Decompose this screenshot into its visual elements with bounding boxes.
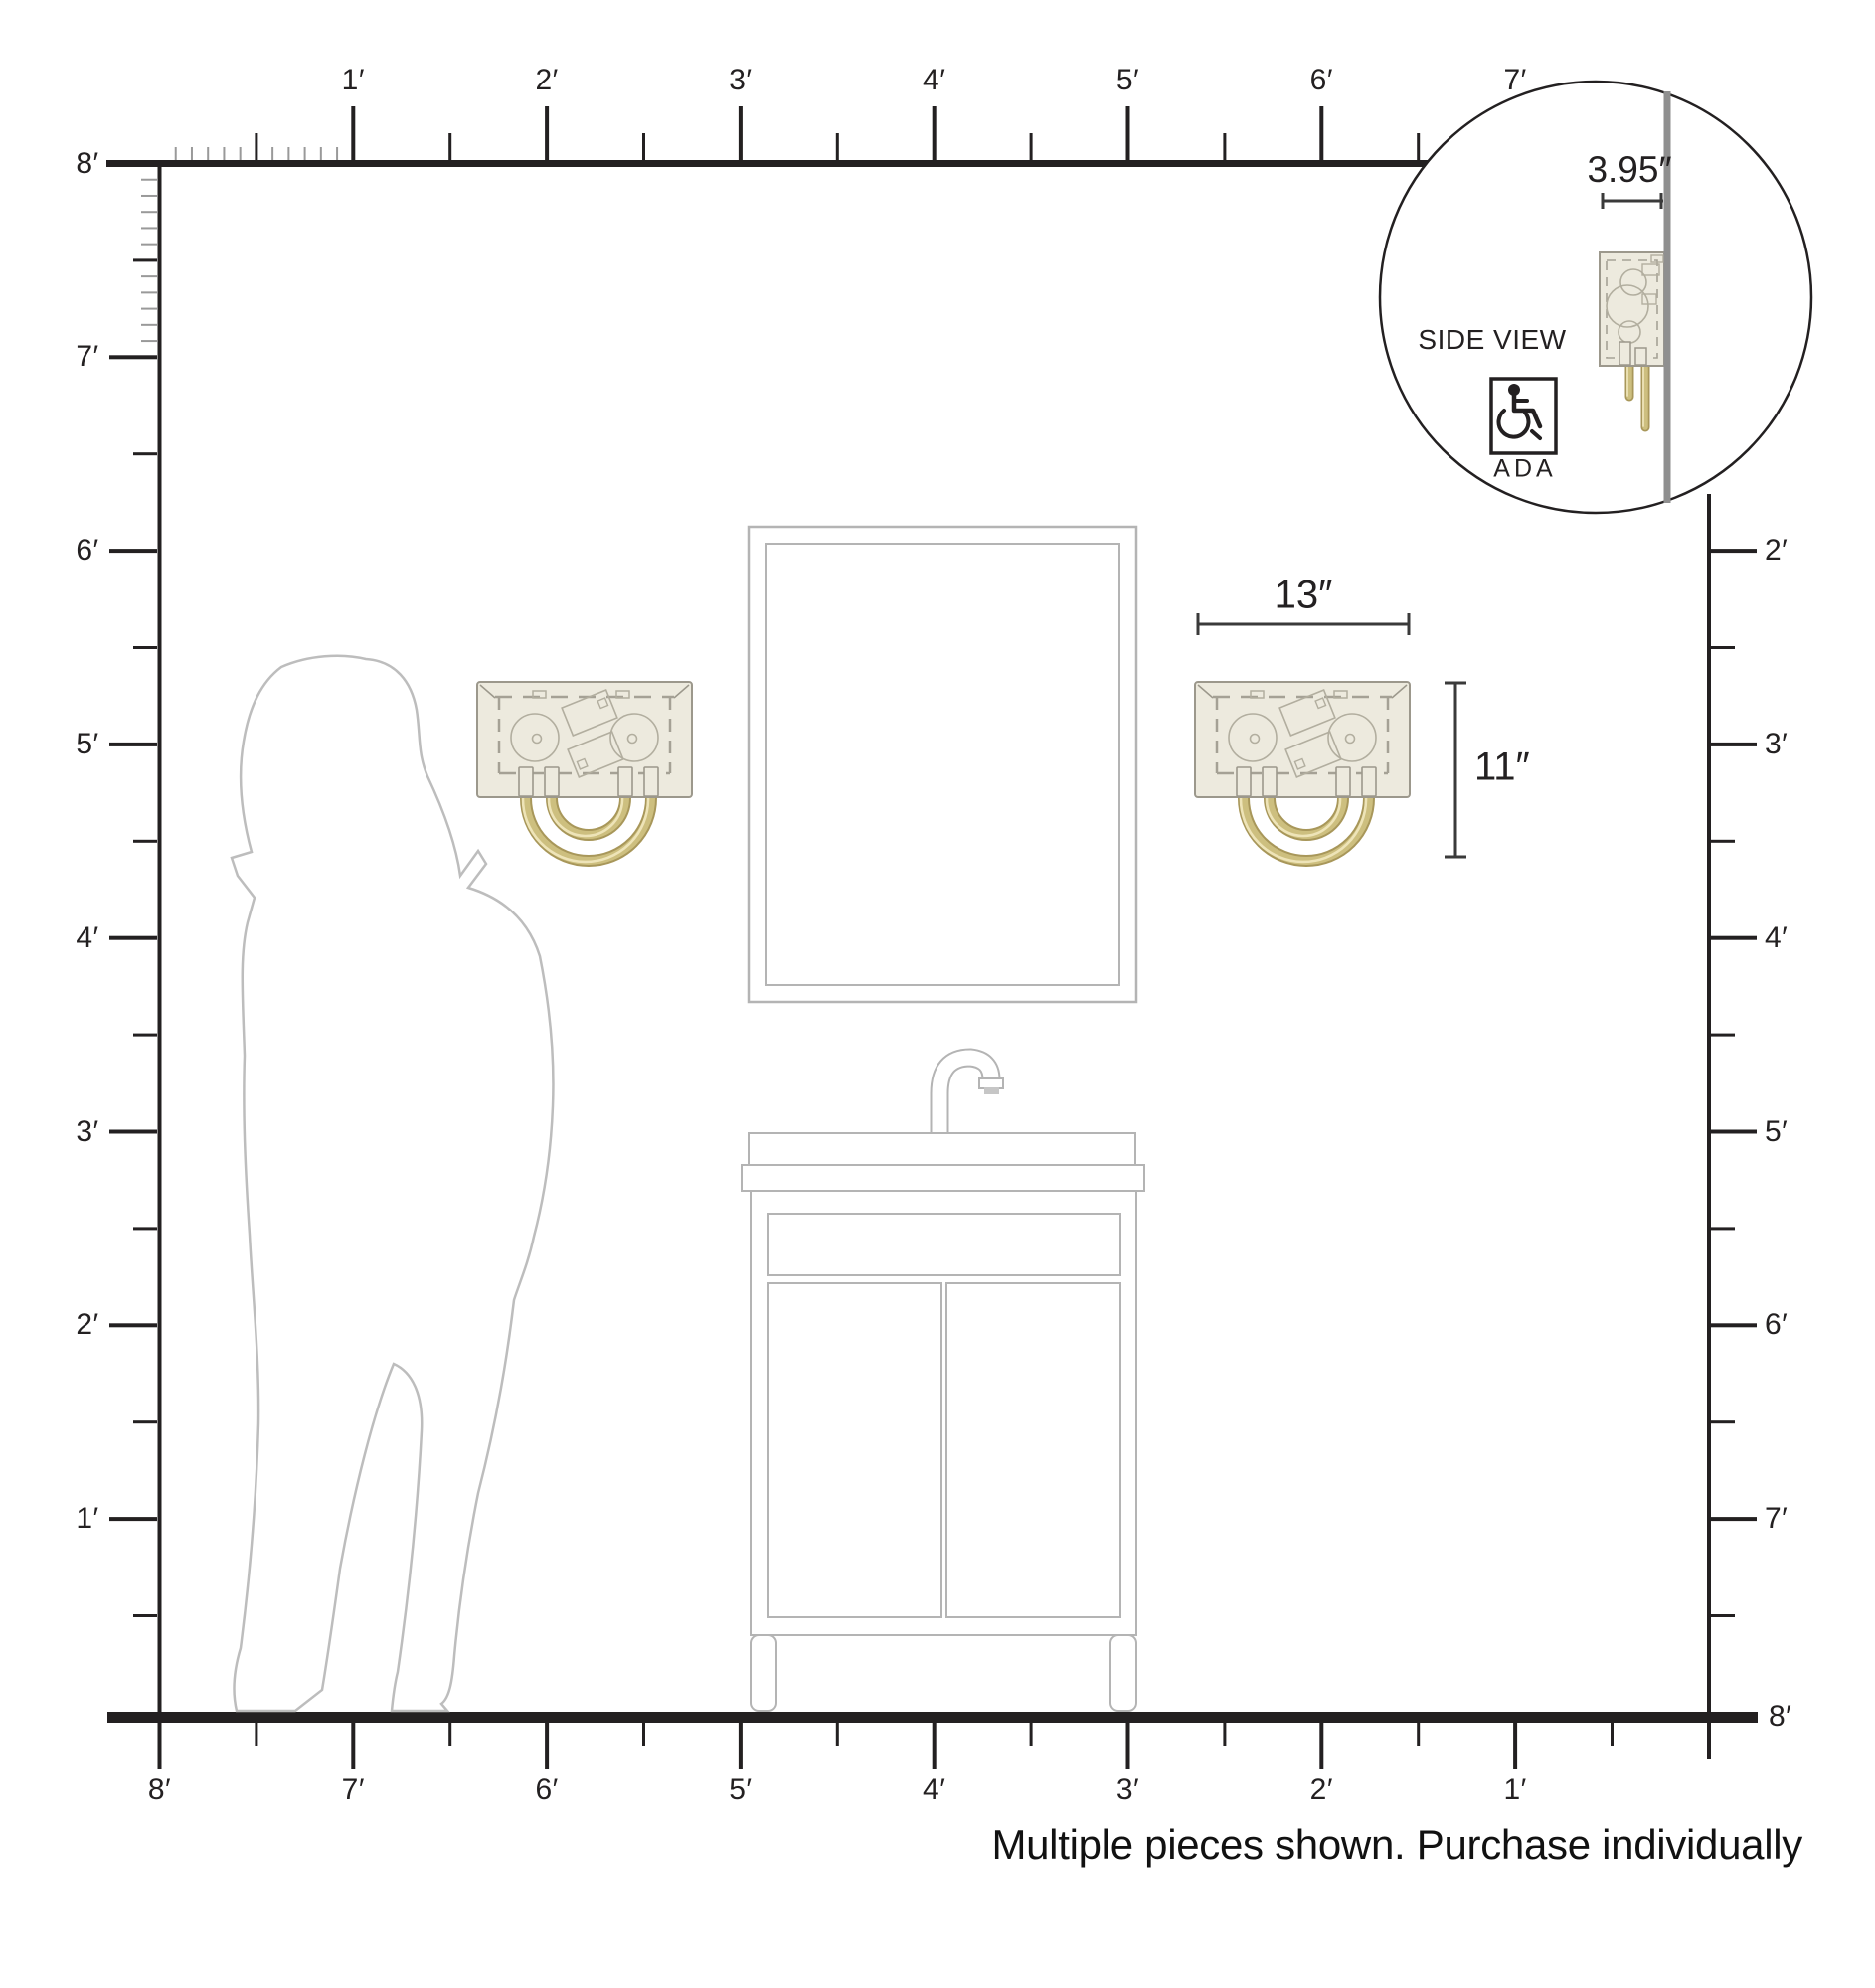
top-half-foot-tick xyxy=(255,133,257,160)
top-half-foot-tick xyxy=(836,133,839,160)
left-inch-tick xyxy=(141,227,157,229)
bottom-half-foot-tick xyxy=(1611,1723,1614,1746)
left-inch-tick xyxy=(141,244,157,246)
right-foot-tick xyxy=(1711,549,1757,553)
left-inch-tick xyxy=(141,308,157,310)
top-inch-tick xyxy=(320,147,322,160)
left-foot-tick xyxy=(109,1323,157,1327)
right-half-foot-tick xyxy=(1711,1227,1735,1230)
top-half-foot-tick xyxy=(642,133,645,160)
bottom-foot-tick xyxy=(739,1723,743,1769)
left-half-foot-tick xyxy=(133,646,157,649)
bottom-foot-tick xyxy=(933,1723,937,1769)
left-half-foot-tick xyxy=(133,258,157,261)
woman-outline xyxy=(232,656,553,1711)
top-half-foot-tick xyxy=(1223,133,1226,160)
right-foot-tick xyxy=(1711,743,1757,746)
bottom-foot-tick xyxy=(1513,1723,1517,1769)
top-inch-tick xyxy=(191,147,193,160)
top-inch-tick xyxy=(287,147,289,160)
left-inch-tick xyxy=(141,211,157,213)
top-inch-tick xyxy=(223,147,225,160)
right-foot-tick xyxy=(1711,1130,1757,1134)
bottom-half-foot-tick xyxy=(836,1723,839,1746)
left-half-foot-tick xyxy=(133,1420,157,1423)
left-half-foot-tick xyxy=(133,452,157,455)
left-foot-tick xyxy=(109,1130,157,1134)
left-foot-tick xyxy=(109,936,157,940)
inset-circle xyxy=(1380,82,1811,513)
ada-badge xyxy=(1491,379,1556,453)
bottom-half-foot-tick xyxy=(1417,1723,1420,1746)
left-inch-tick xyxy=(141,195,157,197)
sconce-right xyxy=(1195,682,1410,862)
woman-silhouette xyxy=(232,656,553,1711)
bottom-half-foot-tick xyxy=(255,1723,257,1746)
left-foot-tick xyxy=(109,549,157,553)
height-dimension xyxy=(1445,683,1466,857)
floor-line xyxy=(107,1712,1758,1723)
left-half-foot-tick xyxy=(133,1614,157,1617)
wall-line xyxy=(1664,91,1671,503)
left-inch-tick xyxy=(141,340,157,342)
vanity-backsplash xyxy=(749,1133,1135,1165)
bottom-half-foot-tick xyxy=(642,1723,645,1746)
right-foot-tick xyxy=(1711,936,1757,940)
sconce-left xyxy=(477,682,692,862)
left-inch-tick xyxy=(141,275,157,277)
bottom-foot-tick xyxy=(1319,1723,1323,1769)
top-half-foot-tick xyxy=(448,133,451,160)
top-inch-tick xyxy=(175,147,177,160)
top-foot-tick xyxy=(933,106,937,160)
right-half-foot-tick xyxy=(1711,1034,1735,1037)
top-half-foot-tick xyxy=(1030,133,1033,160)
dimension-diagram: 13″ 11″ 3.95″ SIDE VIEW ADA Multiple pie… xyxy=(0,0,1875,1988)
left-half-foot-tick xyxy=(133,840,157,843)
vanity-leg-right xyxy=(1110,1635,1136,1711)
bottom-half-foot-tick xyxy=(1030,1723,1033,1746)
right-ruler-line xyxy=(1707,494,1711,1759)
mirror xyxy=(749,527,1136,1002)
left-foot-tick xyxy=(109,1517,157,1521)
top-foot-tick xyxy=(1126,106,1130,160)
faucet-spout-tip xyxy=(979,1078,1003,1088)
diagram-artwork xyxy=(0,0,1875,1988)
top-half-foot-tick xyxy=(1417,133,1420,160)
bottom-foot-tick xyxy=(545,1723,549,1769)
top-foot-tick xyxy=(1319,106,1323,160)
left-inch-tick xyxy=(141,324,157,326)
side-view-inset xyxy=(1380,82,1811,513)
vanity-door-right xyxy=(946,1283,1120,1617)
faucet-aerator xyxy=(984,1087,999,1094)
left-half-foot-tick xyxy=(133,1227,157,1230)
right-half-foot-tick xyxy=(1711,646,1735,649)
right-half-foot-tick xyxy=(1711,1614,1735,1617)
left-foot-tick xyxy=(109,743,157,746)
top-foot-tick xyxy=(351,106,355,160)
left-inch-tick xyxy=(141,291,157,293)
left-half-foot-tick xyxy=(133,1034,157,1037)
top-inch-tick xyxy=(240,147,242,160)
top-inch-tick xyxy=(207,147,209,160)
top-inch-tick xyxy=(304,147,306,160)
top-foot-tick xyxy=(739,106,743,160)
width-dimension xyxy=(1198,613,1409,635)
bottom-half-foot-tick xyxy=(1223,1723,1226,1746)
left-inch-tick xyxy=(141,179,157,181)
vanity xyxy=(742,1058,1144,1711)
top-inch-tick xyxy=(271,147,273,160)
top-inch-tick xyxy=(336,147,338,160)
bottom-foot-tick xyxy=(1126,1723,1130,1769)
left-foot-tick xyxy=(109,355,157,359)
bottom-foot-tick xyxy=(158,1723,162,1769)
vanity-countertop xyxy=(742,1165,1144,1191)
mirror-frame-inner xyxy=(766,544,1119,985)
right-foot-tick xyxy=(1711,1323,1757,1327)
vanity-leg-left xyxy=(751,1635,776,1711)
top-foot-tick xyxy=(545,106,549,160)
bottom-foot-tick xyxy=(351,1723,355,1769)
right-half-foot-tick xyxy=(1711,840,1735,843)
inset-sconce-side xyxy=(1600,252,1664,366)
right-half-foot-tick xyxy=(1711,1420,1735,1423)
right-foot-tick xyxy=(1711,1517,1757,1521)
vanity-drawer-panel xyxy=(768,1214,1120,1275)
bottom-half-foot-tick xyxy=(448,1723,451,1746)
left-ruler-line xyxy=(158,160,162,1769)
vanity-door-left xyxy=(768,1283,941,1617)
